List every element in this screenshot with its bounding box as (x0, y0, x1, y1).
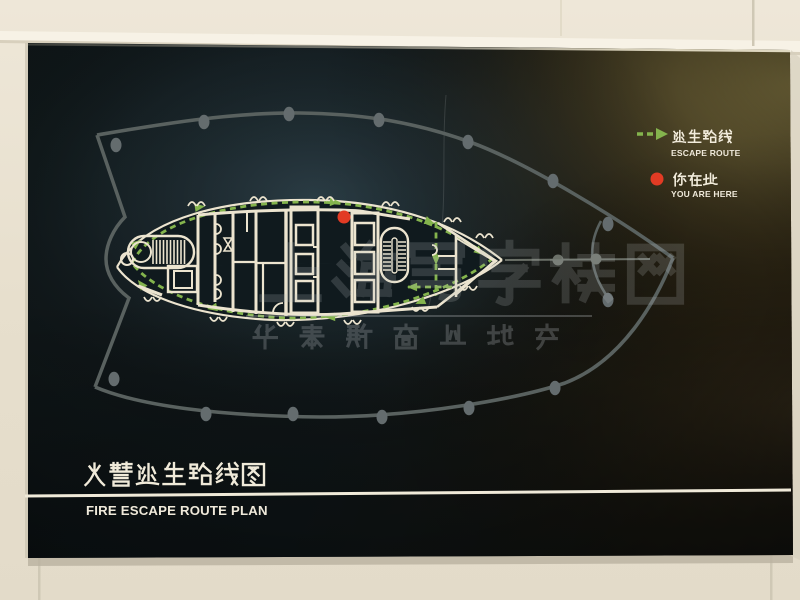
svg-text:FIRE ESCAPE ROUTE PLAN: FIRE ESCAPE ROUTE PLAN (86, 503, 268, 518)
svg-text:ESCAPE ROUTE: ESCAPE ROUTE (671, 148, 741, 158)
svg-text:YOU ARE HERE: YOU ARE HERE (671, 189, 738, 199)
